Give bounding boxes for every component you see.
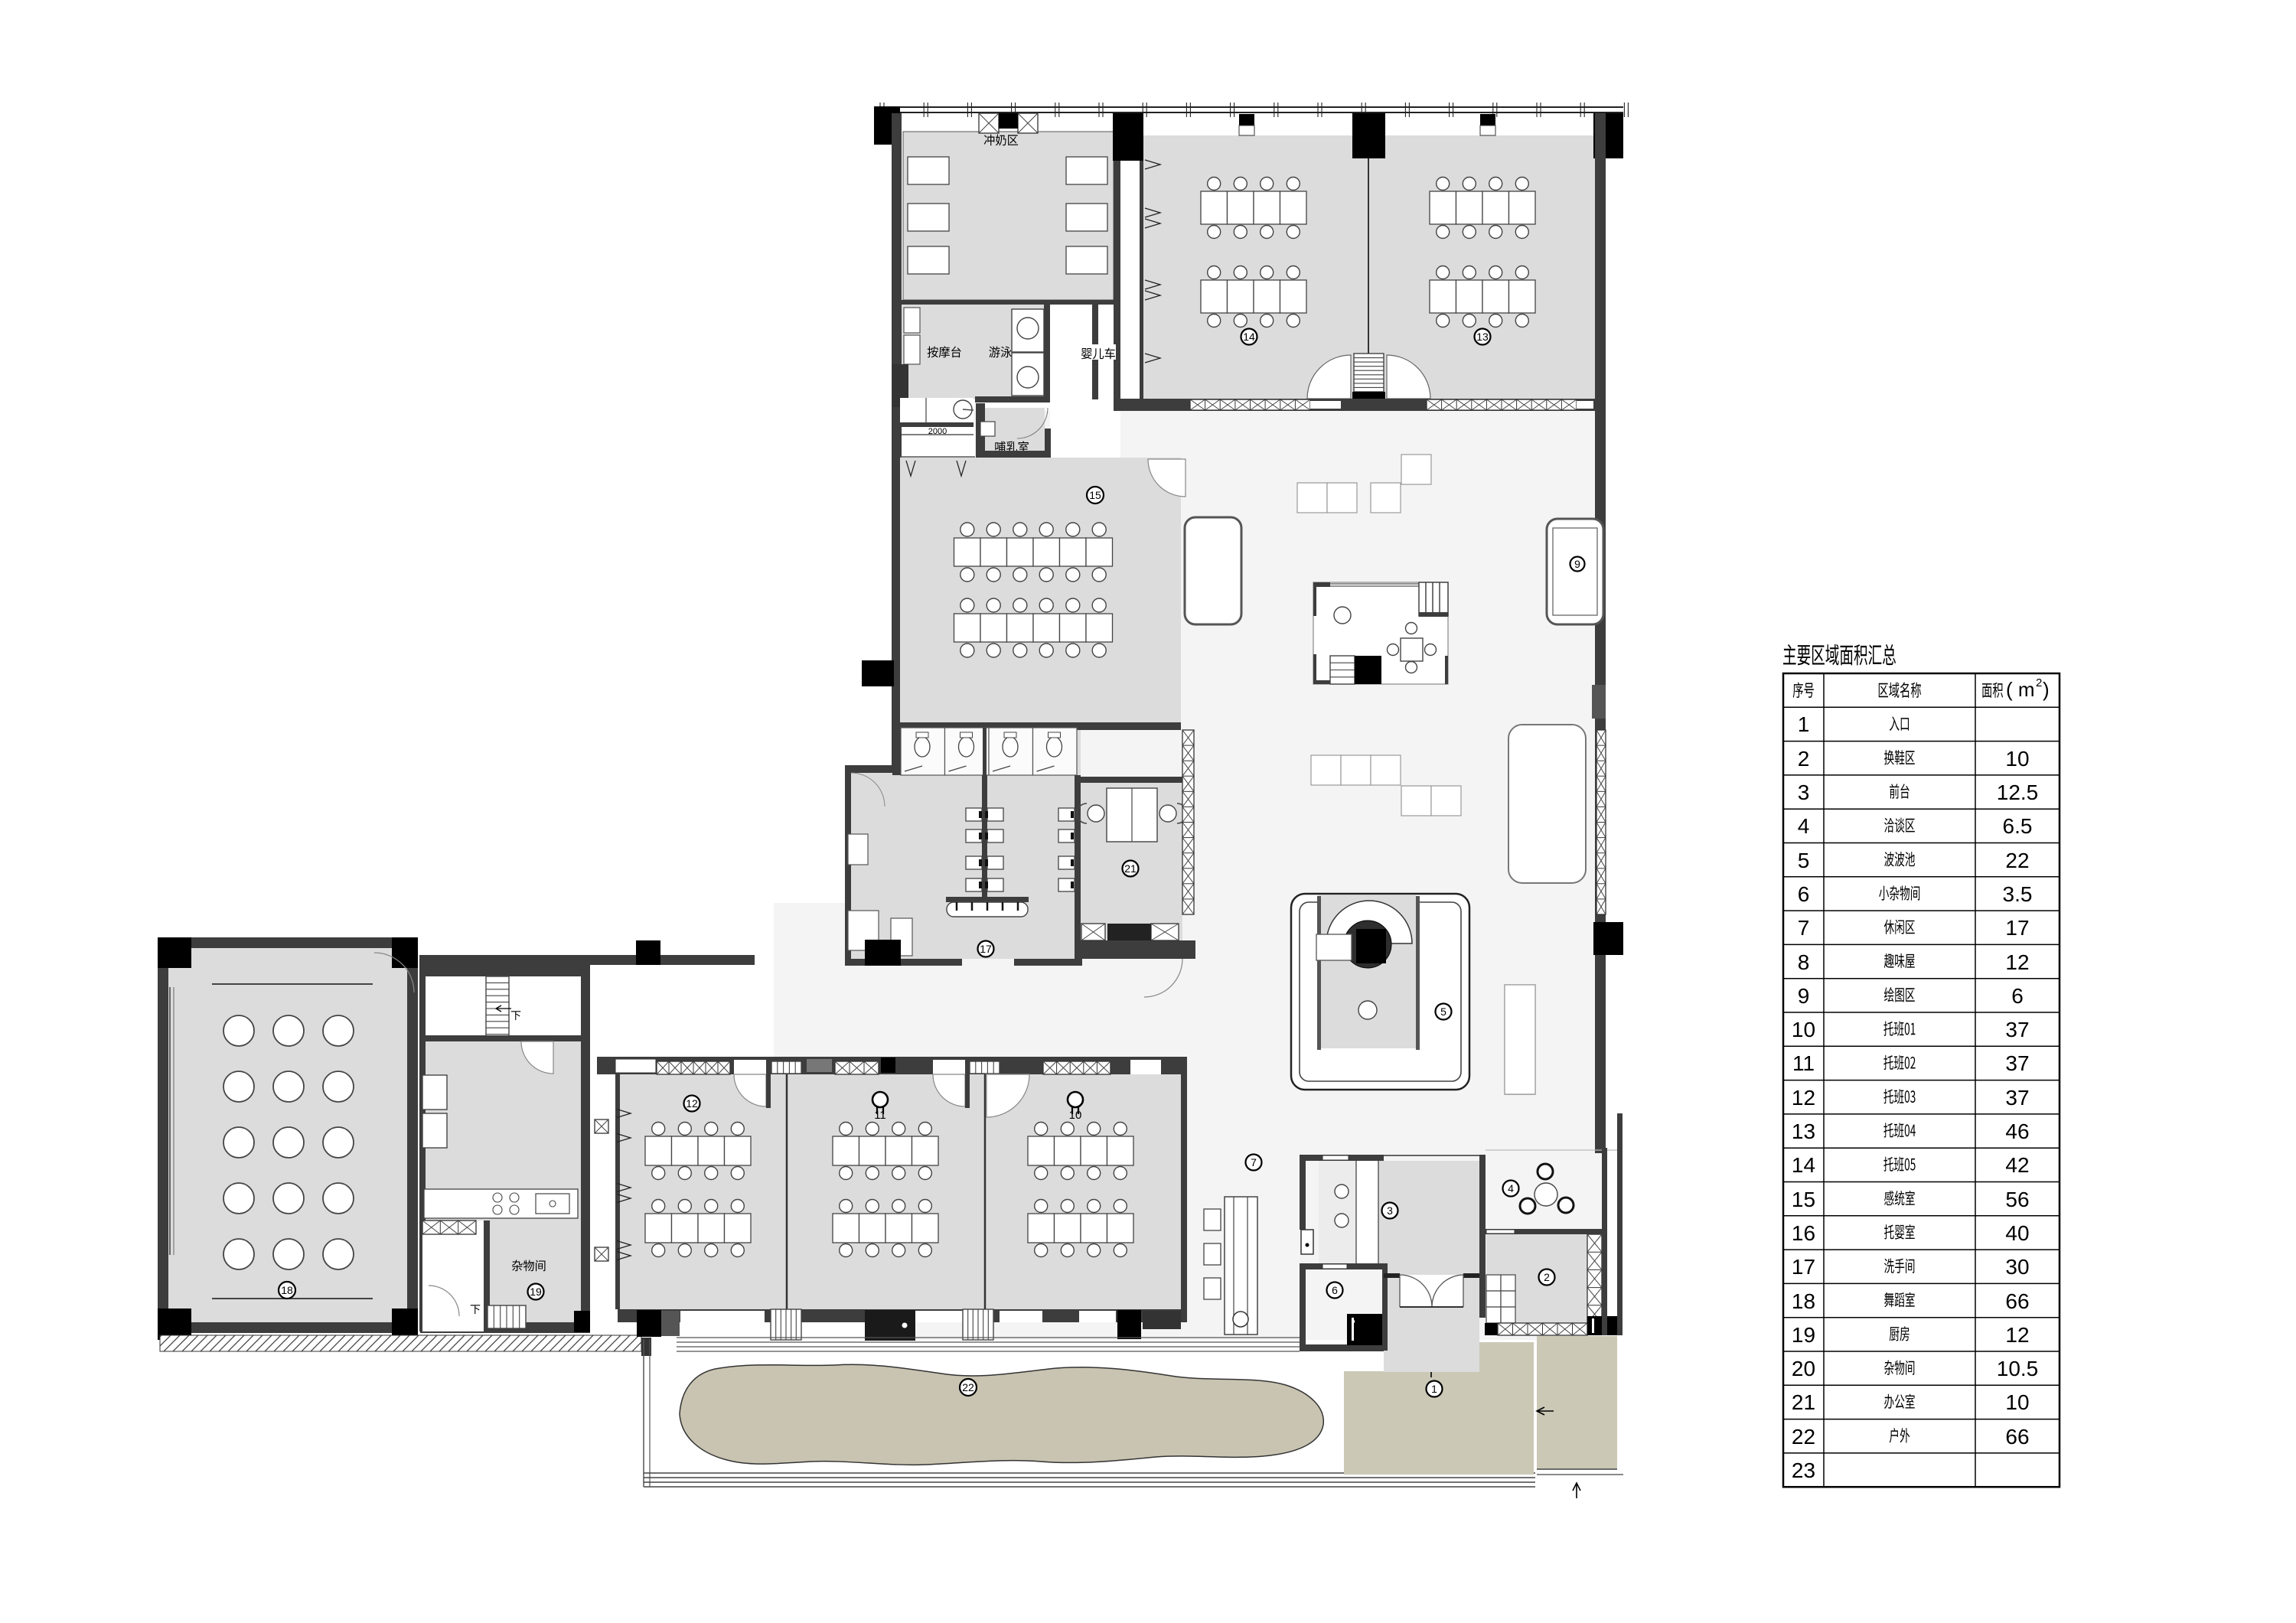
svg-text:10: 10 xyxy=(2005,747,2029,771)
svg-text:10: 10 xyxy=(2005,1390,2029,1414)
svg-text:22: 22 xyxy=(962,1381,974,1393)
svg-text:40: 40 xyxy=(2005,1221,2029,1245)
svg-text:18: 18 xyxy=(281,1284,293,1296)
svg-text:): ) xyxy=(2043,678,2050,701)
svg-text:66: 66 xyxy=(2005,1289,2029,1313)
svg-text:2: 2 xyxy=(1798,747,1810,771)
svg-text:21: 21 xyxy=(1124,862,1137,875)
svg-text:37: 37 xyxy=(2005,1018,2029,1041)
svg-text:6.5: 6.5 xyxy=(2003,814,2033,838)
svg-text:12: 12 xyxy=(2005,950,2029,974)
svg-text:21: 21 xyxy=(1792,1390,1815,1414)
svg-text:20: 20 xyxy=(1792,1357,1815,1380)
svg-text:66: 66 xyxy=(2005,1425,2029,1449)
svg-text:8: 8 xyxy=(1798,950,1810,974)
svg-text:2000: 2000 xyxy=(928,427,947,436)
svg-text:16: 16 xyxy=(1792,1221,1815,1245)
svg-text:22: 22 xyxy=(1792,1425,1815,1449)
svg-text:13: 13 xyxy=(1792,1119,1815,1143)
svg-text:2: 2 xyxy=(1544,1271,1550,1283)
svg-text:23: 23 xyxy=(1792,1458,1815,1482)
svg-text:9: 9 xyxy=(1574,558,1580,570)
svg-text:( m: ( m xyxy=(2006,678,2035,701)
svg-text:22: 22 xyxy=(2005,849,2029,872)
svg-text:10: 10 xyxy=(1069,1109,1082,1122)
svg-text:37: 37 xyxy=(2005,1051,2029,1075)
svg-text:7: 7 xyxy=(1798,916,1810,940)
svg-text:46: 46 xyxy=(2005,1119,2029,1143)
svg-text:1: 1 xyxy=(1431,1383,1437,1395)
svg-text:14: 14 xyxy=(1792,1153,1815,1177)
svg-text:19: 19 xyxy=(1792,1323,1815,1347)
svg-text:56: 56 xyxy=(2005,1188,2029,1211)
svg-text:10.5: 10.5 xyxy=(1997,1357,2039,1380)
svg-text:6: 6 xyxy=(2011,984,2024,1008)
svg-text:14: 14 xyxy=(1243,331,1255,343)
svg-text:37: 37 xyxy=(2005,1086,2029,1110)
svg-text:18: 18 xyxy=(1792,1289,1815,1313)
svg-text:3.5: 3.5 xyxy=(2003,882,2033,906)
svg-text:5: 5 xyxy=(1798,849,1810,872)
svg-text:12: 12 xyxy=(2005,1323,2029,1347)
svg-text:2: 2 xyxy=(2036,676,2042,689)
svg-text:1: 1 xyxy=(1798,712,1810,736)
svg-text:13: 13 xyxy=(1476,331,1489,343)
svg-text:5: 5 xyxy=(1440,1005,1446,1018)
svg-text:7: 7 xyxy=(1251,1156,1257,1168)
svg-text:30: 30 xyxy=(2005,1255,2029,1279)
svg-text:6: 6 xyxy=(1798,882,1810,906)
svg-text:17: 17 xyxy=(2005,916,2029,940)
svg-text:12.5: 12.5 xyxy=(1997,781,2039,804)
svg-text:10: 10 xyxy=(1792,1018,1815,1041)
svg-text:4: 4 xyxy=(1508,1182,1514,1194)
svg-text:17: 17 xyxy=(1792,1255,1815,1279)
svg-text:15: 15 xyxy=(1089,489,1101,501)
svg-text:9: 9 xyxy=(1798,984,1810,1008)
svg-text:3: 3 xyxy=(1798,781,1810,804)
svg-text:17: 17 xyxy=(980,943,992,955)
svg-text:15: 15 xyxy=(1792,1188,1815,1211)
svg-text:11: 11 xyxy=(874,1109,886,1122)
svg-text:42: 42 xyxy=(2005,1153,2029,1177)
svg-text:3: 3 xyxy=(1387,1204,1393,1217)
svg-text:6: 6 xyxy=(1332,1284,1338,1296)
svg-text:12: 12 xyxy=(1792,1086,1815,1110)
svg-text:11: 11 xyxy=(1792,1051,1815,1075)
svg-text:12: 12 xyxy=(686,1097,698,1110)
svg-text:4: 4 xyxy=(1798,814,1810,838)
svg-text:19: 19 xyxy=(530,1286,542,1298)
